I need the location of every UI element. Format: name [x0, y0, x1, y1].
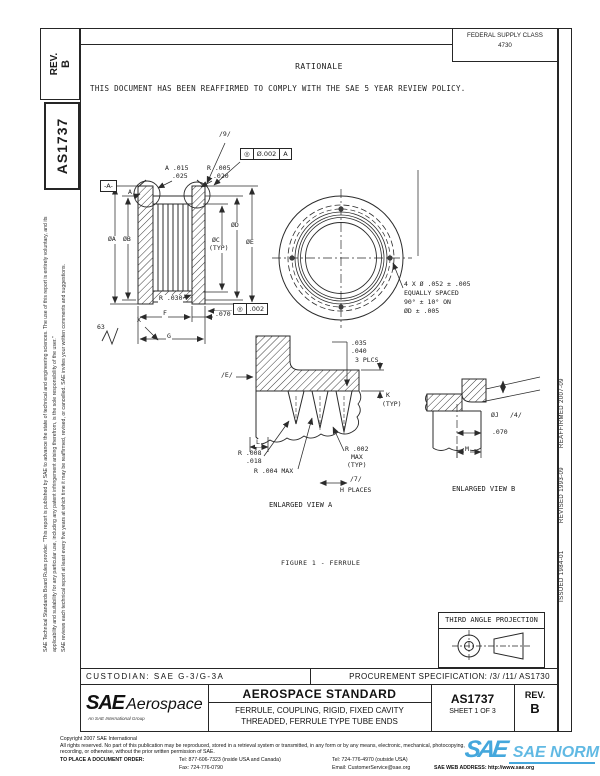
h-places: H PLACES — [340, 487, 371, 495]
watermark-text: SAE NORM — [513, 744, 599, 761]
dim-dia-b: ØB — [122, 236, 132, 244]
radius-note-2: .020 — [213, 173, 229, 181]
sae-standard-sheet: REV. B AS1737 SAE Technical Standards Bo… — [0, 0, 600, 776]
fcf-datum: A — [280, 149, 290, 159]
flagnote-4: /4/ — [510, 412, 522, 420]
figure-caption: FIGURE 1 - FERRULE — [281, 560, 360, 568]
runout-icon: ◎ — [234, 304, 247, 314]
fcf-runout: ◎ .002 — [233, 303, 268, 315]
rev-box-content: REV. B — [40, 28, 80, 100]
fsc-label: FEDERAL SUPPLY CLASS — [452, 32, 558, 39]
dim-x: X — [137, 317, 141, 325]
disclaimer-para2: SAE reviews each technical report at lea… — [60, 195, 69, 652]
web-address: SAE WEB ADDRESS: http://www.sae.org — [434, 765, 534, 771]
dim-r004: R .004 MAX — [254, 468, 293, 476]
enlarged-view-a — [256, 336, 361, 446]
flagnote-7: /7/ — [350, 476, 362, 484]
standard-title-line2: THREADED, FERRULE TYPE TUBE ENDS — [208, 717, 431, 726]
rationale-text: THIS DOCUMENT HAS BEEN REAFFIRMED TO COM… — [90, 84, 466, 93]
dim-l: L — [255, 439, 261, 447]
section-view — [134, 180, 210, 304]
datum-a-flag: -A- — [100, 180, 117, 192]
projection-label: THIRD ANGLE PROJECTION — [438, 616, 545, 624]
front-view — [272, 170, 418, 328]
fcf-runout-tolerance: .002 — [247, 304, 267, 314]
ferrule-drawing — [80, 115, 560, 675]
rev-label: REV. — [49, 53, 60, 75]
fcf-concentricity: ◎ Ø.002 A — [240, 148, 292, 160]
titleblock-top-rule — [80, 684, 558, 685]
hole-note-3: 90° ± 10° ON — [404, 299, 451, 307]
flagnote-e: /E/ — [221, 372, 233, 380]
depth-places: 3 PLCS — [355, 357, 378, 365]
enlarged-view-b — [426, 379, 487, 458]
sae-logo-text: SAE — [86, 692, 124, 714]
sae-norm-watermark: SAE SAE NORM — [465, 736, 599, 764]
sheet-indicator: SHEET 1 OF 3 — [431, 708, 514, 715]
tel-inside: Tel: 877-606-7323 (inside USA and Canada… — [179, 757, 281, 763]
chamfer-note-2: .025 — [172, 173, 188, 181]
dim-r018: .018 — [246, 458, 262, 466]
hole-note-1: 4 X Ø .052 ± .005 — [404, 281, 471, 289]
dim-r002-typ: (TYP) — [347, 462, 367, 470]
dim-dia-a: ØA — [107, 236, 117, 244]
rights-line2: recording, or otherwise, without the pri… — [60, 749, 215, 755]
watermark-rule — [509, 762, 595, 764]
standard-kind: AEROSPACE STANDARD — [208, 687, 431, 701]
custodian: CUSTODIAN: SAE G-3/G-3A — [86, 672, 224, 681]
tel-outside: Tel: 724-776-4970 (outside USA) — [332, 757, 408, 763]
issued-date: ISSUED 1984-01 — [559, 524, 570, 602]
datum-a-text: -A- — [101, 181, 116, 191]
dim-dia-d: ØD — [230, 222, 240, 230]
dim-m: M — [464, 446, 470, 454]
hole-note-4: ØD ± .005 — [404, 308, 439, 316]
top-inner-rule — [80, 44, 452, 45]
procurement-spec: PROCUREMENT SPECIFICATION: /3/ /11/ AS17… — [310, 672, 554, 681]
flagnote-9: /9/ — [219, 131, 231, 139]
doc-number-vertical: AS1737 — [44, 102, 80, 190]
titleblock-rev-value: B — [514, 701, 556, 716]
reaffirmed-date: REAFFIRMED 2007-09 — [559, 343, 570, 448]
dim-f: F — [162, 310, 168, 318]
dim-k: K — [386, 392, 390, 400]
rationale-title: RATIONALE — [80, 62, 558, 72]
rev-value: B — [60, 60, 72, 68]
titleblock-rev-label: REV. — [514, 690, 556, 700]
dim-r030: R .030 — [158, 295, 183, 303]
sae-logo-aerospace: Aerospace — [126, 696, 203, 713]
dim-dia-j: ØJ — [491, 412, 499, 420]
email-address: Email: CustomerService@sae.org — [332, 765, 410, 771]
fsc-value: 4730 — [452, 42, 558, 49]
view-b-caption: ENLARGED VIEW B — [452, 485, 515, 493]
third-angle-symbol — [452, 630, 530, 662]
disclaimer-para1: SAE Technical Standards Board Rules prov… — [42, 195, 60, 652]
copyright-line: Copyright 2007 SAE International — [60, 736, 137, 742]
revised-date: REVISED 1993-09 — [559, 438, 570, 523]
order-label: TO PLACE A DOCUMENT ORDER: — [60, 757, 144, 763]
sae-logo: SAEAerospace — [86, 692, 203, 715]
view-a-caption: ENLARGED VIEW A — [269, 501, 332, 509]
dim-dia-c-typ: (TYP) — [208, 245, 230, 253]
sae-logo-tagline: An SAE International Group — [88, 716, 145, 721]
dim-dia-e: ØE — [245, 239, 255, 247]
standard-title-line1: FERRULE, COUPLING, RIGID, FIXED CAVITY — [208, 706, 431, 715]
view-marker-a: A — [128, 189, 132, 197]
fcf-tolerance: Ø.002 — [254, 149, 281, 159]
depth-040: .040 — [351, 348, 367, 356]
standard-header-rule — [208, 702, 431, 703]
dim-070: .070 — [214, 311, 232, 319]
dim-g: G — [166, 333, 172, 341]
titleblock-doc-number: AS1737 — [431, 692, 514, 706]
surface-finish-63: 63 — [97, 324, 105, 332]
hole-note-2: EQUALLY SPACED — [404, 290, 459, 298]
left-disclaimer: SAE Technical Standards Board Rules prov… — [42, 195, 76, 652]
dim-070-b: .070 — [492, 429, 508, 437]
fax-number: Fax: 724-776-0790 — [179, 765, 223, 771]
dim-k-typ: (TYP) — [382, 401, 402, 409]
watermark-sae-icon: SAE — [463, 736, 507, 764]
concentricity-icon: ◎ — [241, 149, 254, 159]
